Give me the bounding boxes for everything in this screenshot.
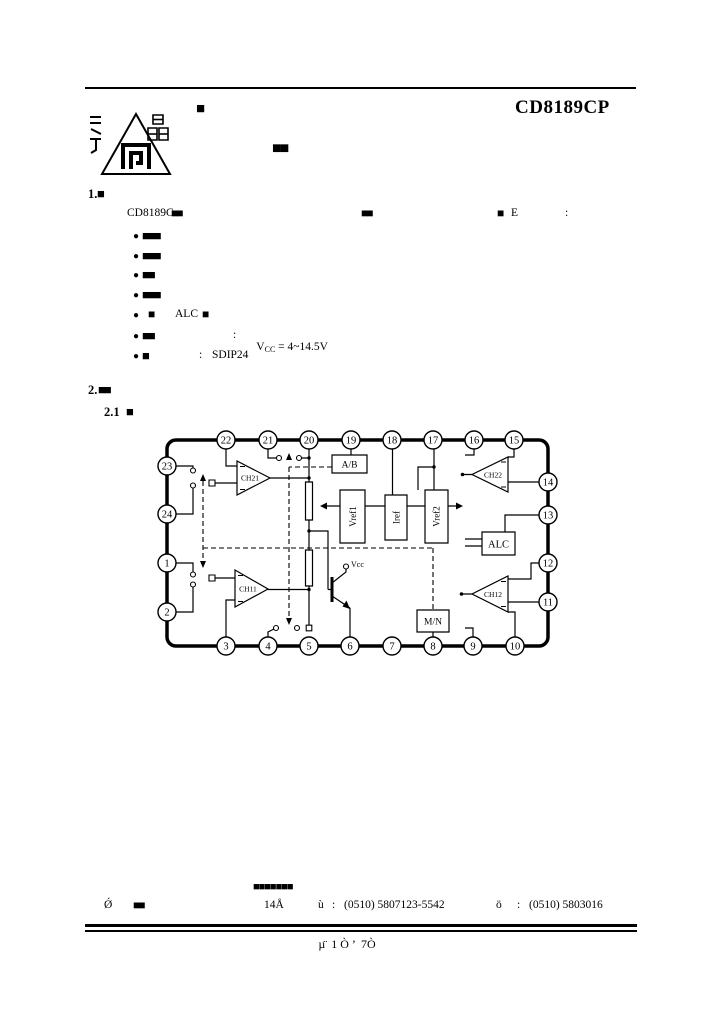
footer-company-garbled: ■■ (133, 898, 144, 913)
vcc-subscript: CC (265, 345, 276, 354)
contact-pin24 (191, 483, 196, 488)
svg-text:21: 21 (263, 436, 274, 447)
bullet-6-vcc-spec: VCC = 4~14.5V (245, 329, 328, 366)
bullet-1-garbled: ■■■ (142, 228, 160, 244)
svg-text:3: 3 (223, 642, 228, 653)
arrow-switch-left-top (200, 474, 206, 481)
pin-15: 15 (505, 431, 523, 449)
ab-box: A/B (332, 455, 367, 473)
arrow-switch-left-bottom (200, 561, 206, 568)
datasheet-page: ■ ■■ CD8189CP 1. ■ CD8189C ■■ ■■ ■ E : ●… (0, 0, 720, 1012)
svg-text:14: 14 (543, 478, 554, 489)
intro-colon: : (565, 207, 568, 219)
svg-text:13: 13 (543, 511, 554, 522)
arrow-vref1-out (320, 503, 327, 510)
bullet-7-colon: : (199, 349, 202, 361)
section-2-garbled: ■■ (98, 382, 110, 398)
junction-dot (307, 529, 310, 532)
bullet-3-dot: ● (133, 270, 139, 281)
arrow-switch-top (286, 453, 292, 460)
footer-mark-garbled: Ǿ (104, 899, 112, 911)
garbled-cjk-subtitle: ■■ (272, 140, 287, 158)
bullet-5-alc-text: ALC (175, 308, 198, 320)
bullet-5-garbled-1: ■ (148, 307, 155, 322)
intro-part-number: CD8189C (127, 207, 174, 219)
svg-text:Vref2: Vref2 (432, 506, 442, 526)
intro-garbled-2: ■■ (361, 206, 372, 221)
footer-address-garbled: ■■■■■■■ (253, 881, 293, 893)
svg-text:18: 18 (387, 436, 398, 447)
section-1-garbled: ■ (97, 186, 105, 202)
svg-text:22: 22 (221, 436, 232, 447)
contact-mid (295, 626, 300, 631)
section-1-number: 1. (88, 187, 97, 202)
junction-dot (307, 456, 310, 459)
amp-ch22: CH22 (472, 457, 508, 492)
resistor-upper (306, 482, 313, 520)
pin-13: 13 (539, 506, 557, 524)
arrow-emitter (343, 601, 351, 610)
svg-text:12: 12 (543, 559, 554, 570)
pin-17: 17 (424, 431, 442, 449)
vcc-range: = 4~14.5V (275, 341, 328, 353)
footer-postcode: 14Å (264, 899, 284, 911)
svg-text:M/N: M/N (424, 618, 442, 628)
svg-text:5: 5 (306, 642, 311, 653)
page-number: µ̈ 1 Ò ’ 7Ò (0, 937, 694, 952)
arrow-vref2-out (456, 503, 463, 510)
bullet-5-garbled-2: ■ (202, 307, 209, 322)
svg-text:2: 2 (164, 608, 169, 619)
svg-text:24: 24 (162, 510, 173, 521)
contact-pin4 (274, 626, 279, 631)
section-2-number: 2. (88, 383, 97, 398)
svg-text:Iref: Iref (392, 511, 402, 524)
bullet-4-dot: ● (133, 290, 139, 301)
svg-text:11: 11 (543, 598, 553, 609)
contact-square-ch11 (209, 575, 215, 581)
block-diagram: Vcc CH21 CH22 CH11 CH12 A/B (153, 426, 561, 662)
vcc-terminal (344, 564, 349, 569)
svg-text:19: 19 (346, 436, 357, 447)
svg-text:20: 20 (304, 436, 315, 447)
pin-11: 11 (539, 593, 557, 611)
page-title: CD8189CP (515, 97, 610, 119)
contact-pin23 (191, 468, 196, 473)
pin-24: 24 (158, 505, 176, 523)
logo-right-char (147, 114, 171, 146)
amp-ch12: CH12 (472, 576, 508, 612)
intro-garbled-3: ■ (497, 206, 504, 221)
pin-22: 22 (217, 431, 235, 449)
garbled-cjk-top: ■ (196, 101, 205, 118)
pin-3: 3 (217, 637, 235, 655)
svg-text:8: 8 (430, 642, 435, 653)
footer-rule-bottom (85, 930, 637, 932)
svg-text:A/B: A/B (342, 461, 358, 471)
svg-text:10: 10 (510, 642, 521, 653)
ch12-input-dot (460, 592, 464, 596)
pin-1: 1 (158, 554, 176, 572)
svg-text:Vref1: Vref1 (348, 506, 358, 526)
svg-text:CH11: CH11 (239, 585, 257, 594)
ch22-input-dot (461, 473, 465, 477)
contact-pin20 (297, 456, 302, 461)
pin-21: 21 (259, 431, 277, 449)
junction-dot (432, 465, 435, 468)
bullet-3-garbled: ■■ (142, 267, 154, 283)
vcc-label: Vcc (351, 560, 364, 569)
amp-ch11: CH11 (235, 570, 268, 607)
footer-tel-colon: : (332, 899, 335, 911)
pin-8: 8 (424, 637, 442, 655)
bullet-2-garbled: ■■■ (142, 248, 160, 264)
bullet-7-garbled: ■ (142, 348, 150, 364)
pin-6: 6 (341, 637, 359, 655)
svg-text:6: 6 (347, 642, 352, 653)
svg-text:17: 17 (428, 436, 439, 447)
mn-box: M/N (417, 610, 449, 632)
bullet-4-garbled: ■■■ (142, 287, 160, 303)
svg-text:ALC: ALC (488, 540, 509, 551)
logo-maze-mark (123, 145, 149, 169)
arrow-switch-bottom (286, 618, 292, 625)
junction-dot (307, 476, 310, 479)
junction-dot (307, 588, 310, 591)
section-2-1-garbled: ■ (126, 404, 134, 420)
pin-12: 12 (539, 554, 557, 572)
contact-square-ch21 (209, 480, 215, 486)
footer-fax-label: ö (496, 899, 502, 911)
pin-20: 20 (300, 431, 318, 449)
vcc-symbol: V (256, 341, 264, 353)
bullet-6-dot: ● (133, 331, 139, 342)
alc-box: ALC (482, 532, 515, 555)
svg-text:1: 1 (164, 559, 169, 570)
bullet-7-package: SDIP24 (212, 349, 248, 361)
footer-tel-label: ù (318, 899, 324, 911)
resistor-lower (306, 550, 313, 586)
pin-9: 9 (464, 637, 482, 655)
vref2-box: Vref2 (425, 490, 448, 543)
pin-2: 2 (158, 603, 176, 621)
bullet-5-dot: ● (133, 310, 139, 321)
bullet-6-garbled: ■■ (142, 328, 154, 344)
amp-ch21: CH21 (237, 461, 270, 495)
pin-14: 14 (539, 473, 557, 491)
pin-19: 19 (342, 431, 360, 449)
bullet-6-colon: : (233, 329, 236, 341)
svg-text:CH22: CH22 (484, 471, 502, 480)
svg-text:23: 23 (162, 462, 173, 473)
footer-tel-number: (0510) 5807123-5542 (344, 899, 445, 911)
svg-text:9: 9 (470, 642, 475, 653)
top-rule (85, 87, 636, 89)
pin-16: 16 (465, 431, 483, 449)
intro-suffix: E (511, 207, 518, 219)
footer-fax-number: (0510) 5803016 (529, 899, 603, 911)
iref-box: Iref (385, 495, 407, 540)
intro-garbled-1: ■■ (171, 206, 182, 221)
pin-4: 4 (259, 637, 277, 655)
footer-fax-colon: : (517, 899, 520, 911)
svg-text:CH21: CH21 (241, 474, 259, 483)
pin-10: 10 (506, 637, 524, 655)
section-2-1-number: 2.1 (104, 405, 120, 420)
contact-pin2 (191, 582, 196, 587)
svg-text:4: 4 (265, 642, 271, 653)
pin-18: 18 (383, 431, 401, 449)
pin-7: 7 (383, 637, 401, 655)
svg-text:CH12: CH12 (484, 590, 502, 599)
pin-23: 23 (158, 457, 176, 475)
pin-5: 5 (300, 637, 318, 655)
svg-text:16: 16 (469, 436, 480, 447)
bullet-1-dot: ● (133, 231, 139, 242)
svg-text:7: 7 (389, 642, 394, 653)
contact-pin1 (191, 572, 196, 577)
svg-text:15: 15 (509, 436, 520, 447)
footer-rule-top (85, 924, 637, 927)
transistor: Vcc (332, 560, 364, 602)
contact-square-bottom (306, 625, 312, 631)
contact-pin21 (277, 456, 282, 461)
vref1-box: Vref1 (340, 490, 365, 543)
bullet-7-dot: ● (133, 351, 139, 362)
bullet-2-dot: ● (133, 251, 139, 262)
